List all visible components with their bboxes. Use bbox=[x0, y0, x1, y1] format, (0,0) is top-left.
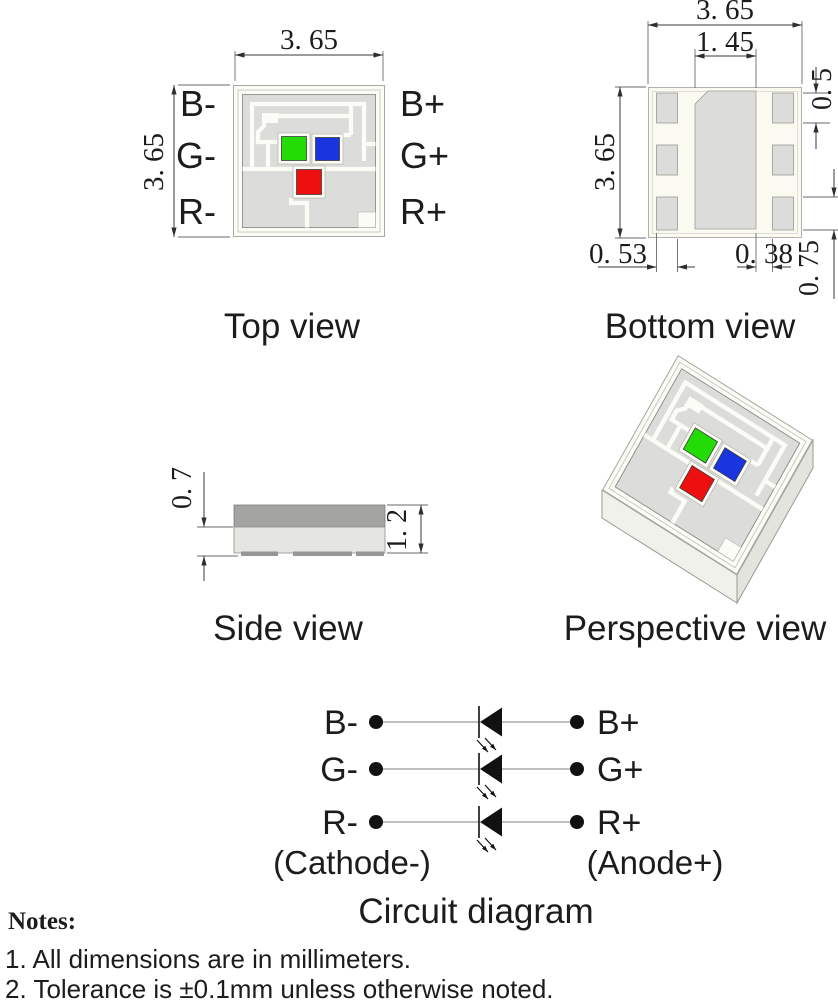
pin-label-r-neg: R- bbox=[178, 191, 216, 232]
top-view-package bbox=[234, 86, 385, 237]
terminal-dot bbox=[369, 815, 383, 829]
terminal-dot bbox=[570, 815, 584, 829]
circuit-diagram-title: Circuit diagram bbox=[358, 892, 593, 931]
top-view-height-dim: 3. 65 bbox=[138, 133, 170, 191]
circuit-label-b-pos: B+ bbox=[597, 704, 640, 742]
note-item-2: 2. Tolerance is ±0.1mm unless otherwise … bbox=[5, 974, 554, 1000]
top-view-title: Top view bbox=[224, 307, 361, 346]
pad-gap-dim: 0. 38 bbox=[735, 238, 793, 270]
bottom-width-dim: 3. 65 bbox=[696, 0, 754, 26]
circuit-label-g-neg: G- bbox=[320, 751, 358, 789]
circuit-label-b-neg: B- bbox=[324, 704, 358, 742]
anode-label: (Anode+) bbox=[587, 844, 724, 881]
pin-label-g-neg: G- bbox=[176, 135, 216, 176]
datasheet-drawing: 3. 65 3. 65 B- G- R- B+ G+ R+ Top view bbox=[0, 0, 838, 1000]
side-view: 0. 7 1. 2 Side view bbox=[167, 467, 428, 648]
pin-label-b-pos: B+ bbox=[400, 83, 445, 124]
side-view-title: Side view bbox=[213, 609, 364, 648]
top-view-width-dim: 3. 65 bbox=[280, 24, 338, 56]
terminal-dot bbox=[570, 762, 584, 776]
pin-label-g-pos: G+ bbox=[400, 135, 449, 176]
bottom-height-dim: 3. 65 bbox=[589, 133, 621, 191]
top-view: 3. 65 3. 65 B- G- R- B+ G+ R+ Top view bbox=[138, 24, 449, 346]
perspective-top-face bbox=[603, 356, 813, 574]
bottom-view: 3. 65 1. 45 3. 65 0. 5 0. 75 0. 53 0. 38… bbox=[589, 0, 838, 346]
bottom-view-title: Bottom view bbox=[605, 307, 796, 346]
center-thermal-pad bbox=[695, 91, 756, 229]
perspective-view-title: Perspective view bbox=[564, 609, 827, 648]
circuit-label-g-pos: G+ bbox=[597, 751, 643, 789]
terminal-dot bbox=[369, 715, 383, 729]
cathode-label: (Cathode-) bbox=[273, 844, 431, 881]
circuit-label-r-pos: R+ bbox=[597, 804, 641, 842]
terminal-dot bbox=[570, 715, 584, 729]
corner-pad-height-dim: 0. 75 bbox=[794, 240, 825, 296]
solder-pads bbox=[657, 91, 794, 230]
circuit-diagram: B- B+ G- G+ R- R+ (Cathode bbox=[273, 704, 723, 931]
circuit-row-green: G- G+ bbox=[320, 751, 643, 799]
center-pad-width-dim: 1. 45 bbox=[696, 26, 754, 58]
circuit-label-r-neg: R- bbox=[322, 804, 358, 842]
side-view-base-layer bbox=[234, 527, 385, 553]
note-item-1: 1. All dimensions are in millimeters. bbox=[5, 944, 411, 974]
side-pad-width-dim: 0. 53 bbox=[589, 238, 647, 270]
total-height-dim: 1. 2 bbox=[382, 509, 413, 551]
terminal-dot bbox=[369, 762, 383, 776]
led-datasheet-page: 3. 65 3. 65 B- G- R- B+ G+ R+ Top view bbox=[0, 0, 838, 1000]
pin-label-b-neg: B- bbox=[180, 83, 216, 124]
perspective-view: Perspective view bbox=[564, 356, 827, 648]
base-height-dim: 0. 7 bbox=[167, 467, 198, 509]
side-view-terminals bbox=[241, 552, 384, 557]
pin-label-r-pos: R+ bbox=[400, 191, 447, 232]
side-pad-height-dim: 0. 5 bbox=[807, 68, 838, 110]
circuit-row-blue: B- B+ bbox=[324, 704, 640, 752]
notes-heading: Notes: bbox=[8, 908, 76, 935]
side-view-lens-layer bbox=[234, 505, 385, 527]
